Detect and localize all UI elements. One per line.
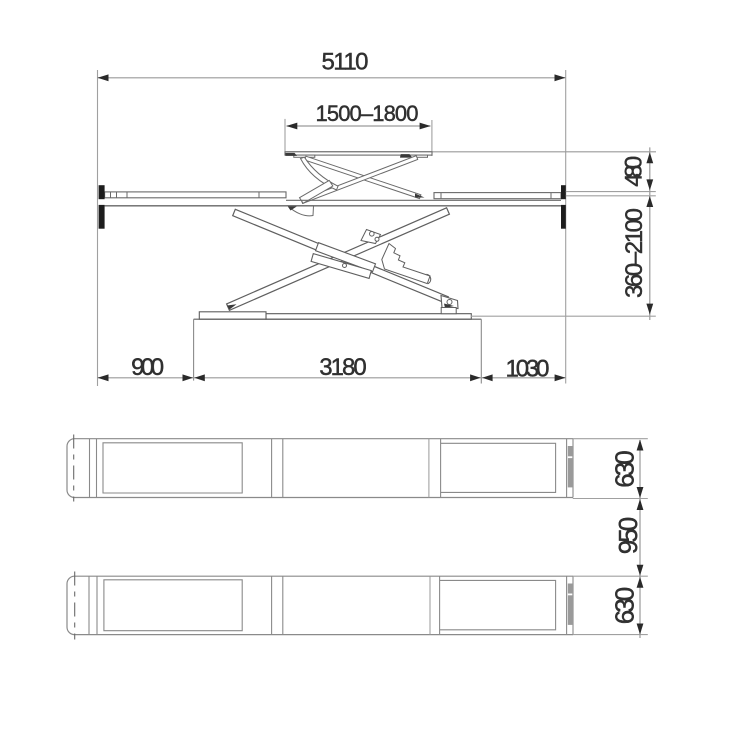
svg-text:630: 630 <box>610 587 640 625</box>
svg-text:1030: 1030 <box>506 355 550 382</box>
svg-text:950: 950 <box>613 517 643 555</box>
svg-text:900: 900 <box>131 354 164 381</box>
svg-text:1500–1800: 1500–1800 <box>316 101 419 126</box>
svg-text:3180: 3180 <box>319 354 367 381</box>
svg-text:480: 480 <box>620 156 647 187</box>
svg-text:360–2100: 360–2100 <box>621 208 648 298</box>
svg-text:630: 630 <box>610 450 640 488</box>
svg-text:5110: 5110 <box>322 49 369 76</box>
